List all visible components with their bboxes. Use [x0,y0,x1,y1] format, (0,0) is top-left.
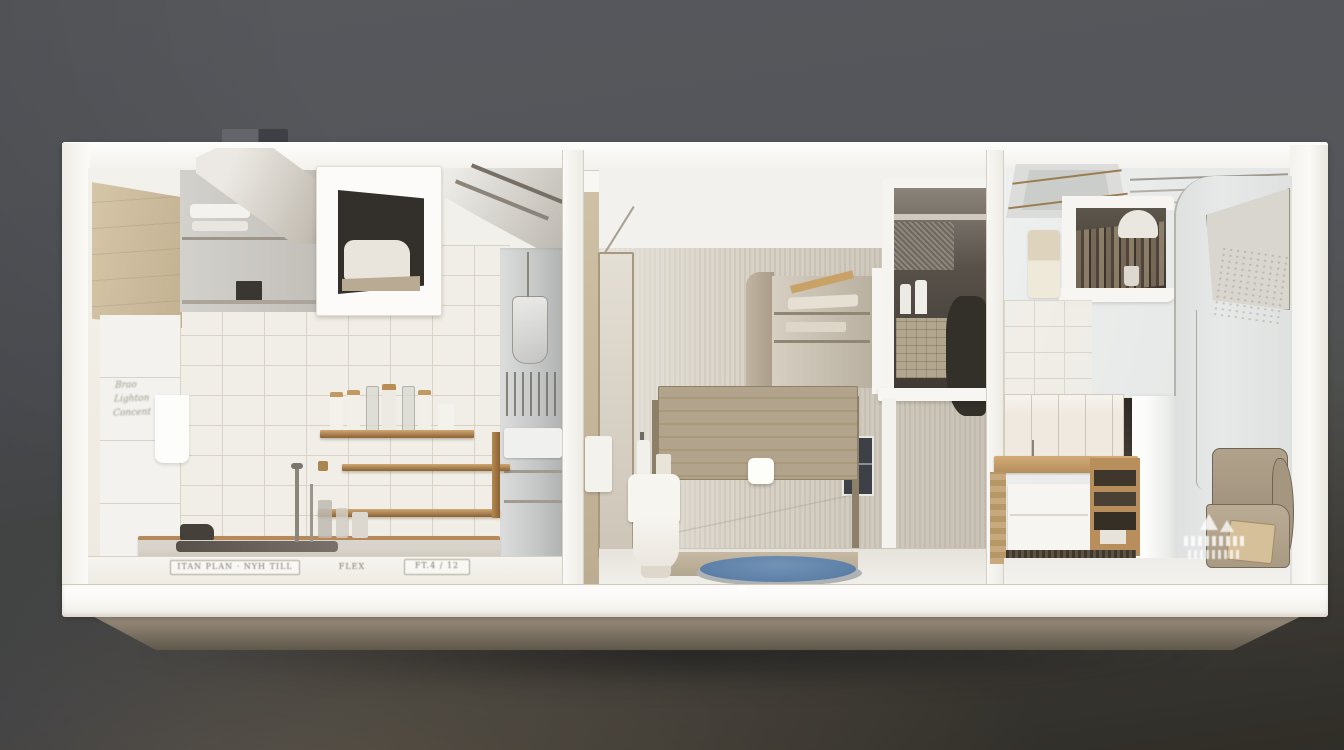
toilet-base [641,566,671,578]
wardrobe-interior [772,276,872,388]
upper-cabinets [1004,394,1124,460]
spray-bottle [637,440,650,476]
niche-bottle-b [915,280,927,314]
floor-mark-mid: FLEX [330,561,374,573]
frame-right [1290,145,1328,615]
glass-jar-1 [366,386,379,432]
glass-pendant [512,296,548,364]
shelf-post [492,432,500,518]
bathroom-left-wall-strip [584,192,599,584]
wall-curve-seam [1196,310,1205,490]
appliance-shelf-line-b [504,500,562,503]
shelf-gap-b [1094,492,1136,506]
faucet-sprayer [310,484,313,542]
closet-dark-box [236,281,262,301]
faucet [295,468,299,542]
niche-sofa [344,240,410,280]
alcove-left-frame [1062,196,1076,296]
counter-bottle-1 [318,500,332,538]
watermark-bar-b [1188,550,1240,559]
bathtub-front [665,478,853,554]
closet-shelf-edge-lower [182,300,320,304]
closet-towel-bottom [192,221,248,231]
bath-mat [700,556,856,582]
floor-slab-front [62,584,1328,617]
wall-shelf-middle [342,464,510,471]
appliance-white-tray [504,428,562,458]
wall-shelf-upper [320,430,474,438]
kitchenette-side-panel [990,472,1006,564]
wardrobe-shelf-b [774,340,870,343]
canister-2 [347,390,360,435]
toilet-tank [628,474,680,522]
wall-note-line-3: Concent [113,405,166,421]
wardrobe-linen-bottom [786,322,846,332]
shelf-gap-c [1094,512,1136,530]
shelf-gap-a [1094,470,1136,486]
counter-bottle-2 [336,508,348,538]
watermark-scribble [1182,514,1246,568]
apartment-cutaway-scene: Brao Lighton Concent ITAN PLAN · NYH TIL… [0,0,1344,750]
drawer-unit [1008,484,1090,552]
pendant-stem [527,252,529,298]
kitchen-beige-wall-panel [92,176,182,328]
canister-1 [330,392,343,435]
wall-note: Brao Lighton Concent [113,377,168,421]
watermark-triangle-b [1220,520,1234,532]
bathroom-towel-holder [585,436,612,492]
drawer-divider [1010,514,1088,516]
divider-wall-left [562,150,584,586]
sink-basin [176,541,338,552]
wall-stipple-texture [1211,245,1290,324]
watermark-triangle-a [1200,514,1218,530]
canister-4 [418,390,431,435]
frame-left [62,143,90,615]
dish-rack [506,372,562,416]
alcove-mug [1124,266,1139,286]
faucet-head [291,463,303,469]
slab-highlight-dot [738,586,746,591]
counter-jar [352,512,368,538]
wardrobe-side-panel [746,272,774,392]
kitchenette-faucet [1032,440,1034,456]
floor-mark-left: ITAN PLAN · NYH TILL [170,560,300,575]
niche-blanket [894,222,954,270]
appliance-shelf-line-a [504,470,562,473]
toilet-bowl [633,518,679,572]
wardrobe-shelf-a [774,312,870,315]
small-jar [438,404,454,430]
shelf-box [1100,530,1126,544]
niche-closet-shelf [894,214,986,220]
closet-towel-top [190,204,250,218]
kitchen-floor-edge [88,556,566,587]
floor-mark-right: FT.4 / 12 [404,559,470,575]
watermark-bar-a [1184,536,1244,546]
niche-bottle-a [900,284,911,314]
canister-3 [382,384,396,436]
kettle [180,524,214,540]
wall-cream-panel [1028,230,1060,298]
glass-jar-2 [402,386,415,432]
shelf-knob [318,461,328,471]
